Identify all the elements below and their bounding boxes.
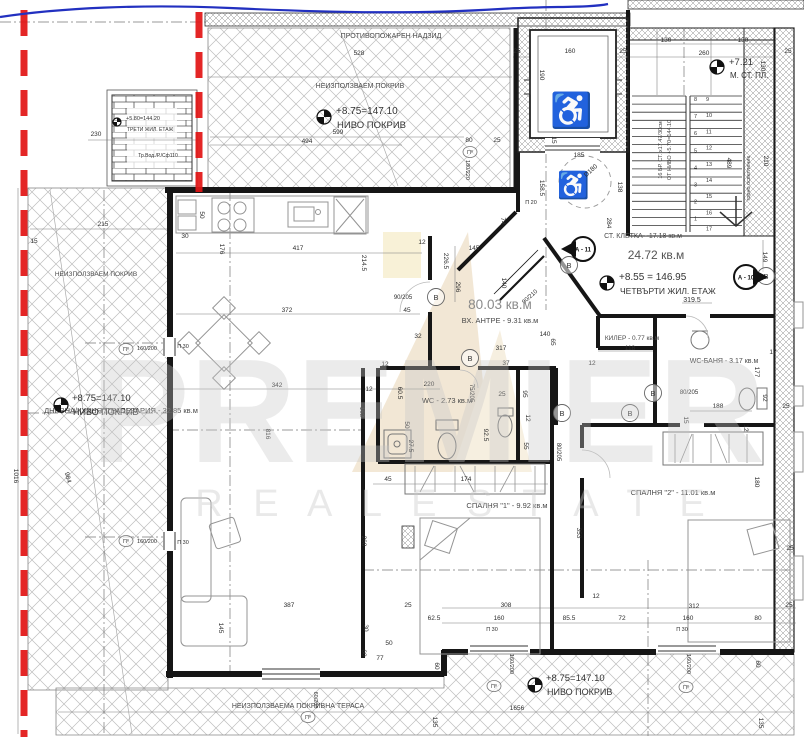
dimension-label: 160/200 [508, 654, 514, 674]
dimension-label: 215 [98, 221, 109, 228]
dimension-label: 160/200 [685, 654, 691, 674]
stair-step-number: 17 [706, 227, 712, 233]
dimension-label: П 30 [676, 627, 688, 633]
dimension-label: 60 [360, 649, 367, 657]
area-label: НЕИЗПОЛЗВАЕМА ПОКРИВНА ТЕРАСА [232, 703, 365, 710]
dimension-label: 25 [493, 137, 501, 144]
window-marker-label: Пº [683, 684, 689, 691]
dimension-label: 90/205 [394, 295, 413, 301]
window-marker-label: Пº [305, 714, 311, 721]
stair-note: горно осветление [746, 155, 752, 200]
dimension-label: 60 [754, 660, 761, 668]
bed-1 [420, 518, 540, 654]
dimension-label: 260 [699, 50, 710, 57]
elevator-shaft [518, 18, 628, 154]
dimension-label: 284 [605, 218, 612, 229]
dimension-label: 130 [738, 37, 749, 44]
window-marker-label: Пº [491, 683, 497, 690]
floor-plan-canvas: ♿ ♿ 8765432191011121314151617 5285994948… [0, 0, 804, 737]
stair-top-wall [628, 28, 774, 40]
dimension-label: 45 [403, 307, 411, 314]
dimension-label: 494 [302, 138, 313, 145]
annotation-label: Тр.Вод./Р./Сф110 [138, 153, 178, 159]
stair-step-number: 9 [706, 97, 709, 103]
column-pier [402, 526, 414, 548]
dimension-label: 12 [418, 239, 426, 246]
dimension-label: 25 [513, 48, 521, 55]
watermark-text: PREMIER R E A L E S T A T E [91, 329, 765, 525]
annotation-label: 24.72 кв.м [628, 248, 685, 262]
dimension-label: 74 [499, 217, 506, 225]
dimension-label: 25 [782, 403, 790, 410]
dimension-label: 17 [769, 349, 777, 356]
dimension-label: 308 [501, 602, 512, 609]
stair-step-number: 4 [694, 165, 697, 171]
dimension-label: 214.5 [360, 255, 367, 272]
level-name: ЧЕТВЪРТИ ЖИЛ. ЕТАЖ [620, 286, 716, 296]
stair-step-number: 1 [694, 217, 697, 223]
dimension-label: 387 [284, 602, 295, 609]
room-label: СТ. КЛЕТКА - 17.18 кв.м [604, 233, 682, 240]
stair-step-number: 3 [694, 183, 697, 189]
dimension-label: 25 [619, 48, 627, 55]
dimension-label: 30 [181, 233, 189, 240]
dimension-label: 185 [574, 152, 585, 159]
stair-step-number: 2 [694, 200, 697, 206]
dimension-label: 130 [661, 37, 672, 44]
dimension-label: 1016 [12, 469, 19, 484]
dimension-label: 160 [683, 615, 694, 622]
dimension-label: 1656 [510, 705, 525, 712]
stair-step-number: 5 [694, 148, 697, 154]
dimension-label: 160 [565, 48, 576, 55]
area-label: НЕИЗПОЛЗВАЕМ ПОКРИВ [316, 83, 405, 90]
level-name: ТРЕТИ ЖИЛ. ЕТАЖ [127, 127, 174, 133]
stair-step-number: 10 [706, 113, 712, 119]
dimension-label: 489 [725, 158, 732, 169]
apartment-total-area: 80.03 кв.м [468, 297, 532, 312]
top-right-wall-strip [628, 0, 804, 9]
dimension-label: 145 [469, 245, 480, 252]
annotation-label: 319.5 [683, 297, 701, 304]
section-marker-label: А - 10 [738, 276, 755, 282]
dimension-label: 25 [404, 602, 412, 609]
dimension-label: 268 [360, 536, 367, 547]
dimension-label: П 20 [525, 200, 537, 206]
fire-wall-label: ПРОТИВОПОЖАРЕН НАДЗИД [341, 33, 442, 40]
dimension-label: 25 [786, 545, 794, 552]
dimension-label: 296 [454, 282, 461, 293]
watermark-line2: R E A L E S T A T E [195, 483, 715, 525]
dimension-label: 30 [362, 624, 369, 632]
dimension-label: 25 [785, 602, 793, 609]
level-value: +8.75=147.10 [336, 106, 398, 117]
level-value: +8.55 = 146.95 [619, 272, 687, 283]
b-marker-label: В [433, 293, 438, 302]
dimension-label: 72 [618, 615, 626, 622]
section-marker-label: А - 11 [575, 248, 592, 254]
dimension-label: 138 [616, 182, 623, 193]
stair-step-number: 14 [706, 178, 712, 184]
right-exterior-wall [774, 28, 794, 652]
area-label: НЕИЗПОЛЗВАЕМ ПОКРИВ [55, 271, 137, 278]
floor-plan-page: ♿ ♿ 8765432191011121314151617 5285994948… [0, 0, 804, 737]
entry-hall-label: ВХ. АНТРЕ - 9.31 кв.м [462, 316, 539, 325]
dimension-label: 158.5 [538, 180, 545, 197]
level-name: НИВО ПОКРИВ [337, 120, 406, 131]
dimension-label: 190 [538, 70, 545, 81]
stair-step-number: 13 [706, 162, 712, 168]
section-marker-wedge [561, 241, 576, 257]
stair-stringer [686, 96, 690, 232]
dimension-label: 230 [91, 131, 102, 138]
dimension-label: 60 [433, 662, 440, 670]
dimension-label: 80 [754, 615, 762, 622]
dimension-label: 25 [784, 48, 792, 55]
dimension-label: 85.5 [563, 615, 576, 622]
level-name: НИВО ПОКРИВ [547, 687, 612, 697]
dimension-label: 50 [385, 640, 393, 647]
stair-step-number: 16 [706, 210, 712, 216]
dimension-label: 135 [757, 718, 764, 729]
level-value: +5.80=144.20 [126, 116, 160, 122]
dimension-label: 312 [689, 603, 700, 610]
stair-note: 16 БР. СТ. х17.47/30см [658, 121, 664, 178]
dimension-label: 160/200 [137, 539, 157, 545]
watermark-line1: PREMIER [91, 329, 765, 494]
stair-step-number: 15 [706, 194, 712, 200]
stair-step-number: 6 [694, 131, 697, 137]
dimension-label: 160 [494, 615, 505, 622]
stair-step-number: 7 [694, 114, 697, 120]
dimension-label: 210 [762, 156, 769, 167]
dimension-label: 77 [376, 655, 384, 662]
stair-note: ОТ НИВО +5.70=144.10 [667, 120, 673, 180]
dimension-label: 180/220 [464, 160, 470, 180]
dimension-label: П 30 [486, 627, 498, 633]
stair-step-number: 8 [694, 97, 697, 103]
dimension-label: D180 [583, 163, 600, 179]
dimension-label: 62.5 [428, 615, 441, 622]
dimension-label: 417 [293, 245, 304, 252]
stair-step-number: 12 [706, 146, 712, 152]
dimension-label: 12 [592, 593, 600, 600]
dimension-label: 135 [431, 717, 438, 728]
level-value: +8.75=147.10 [546, 673, 605, 684]
dimension-label: 226.5 [442, 253, 449, 270]
dimension-label: 372 [282, 307, 293, 314]
neighbor-building [107, 90, 197, 186]
dimension-label: 528 [354, 50, 365, 57]
dimension-label: П 30 [177, 540, 189, 546]
dimension-label: 80 [465, 137, 473, 144]
dimension-label: 145 [217, 623, 224, 634]
level-name: М. СТ. ПЛ. [730, 71, 768, 80]
level-value: +7.21 [729, 57, 753, 68]
wheelchair-icon: ♿ [550, 91, 592, 130]
dimension-label: 15 [30, 238, 38, 245]
dimension-label: 353 [575, 528, 582, 539]
window-marker-label: Пº [467, 149, 473, 156]
window-marker-label: Пº [123, 538, 129, 545]
dimension-label: 50 [198, 211, 205, 219]
dimension-label: 15 [550, 136, 557, 144]
dimension-label: 149 [761, 252, 768, 263]
dimension-label: 176 [218, 244, 225, 255]
b-marker-label: В [566, 261, 571, 270]
stair-step-number: 11 [706, 129, 712, 135]
dimension-label: 140 [500, 278, 507, 289]
